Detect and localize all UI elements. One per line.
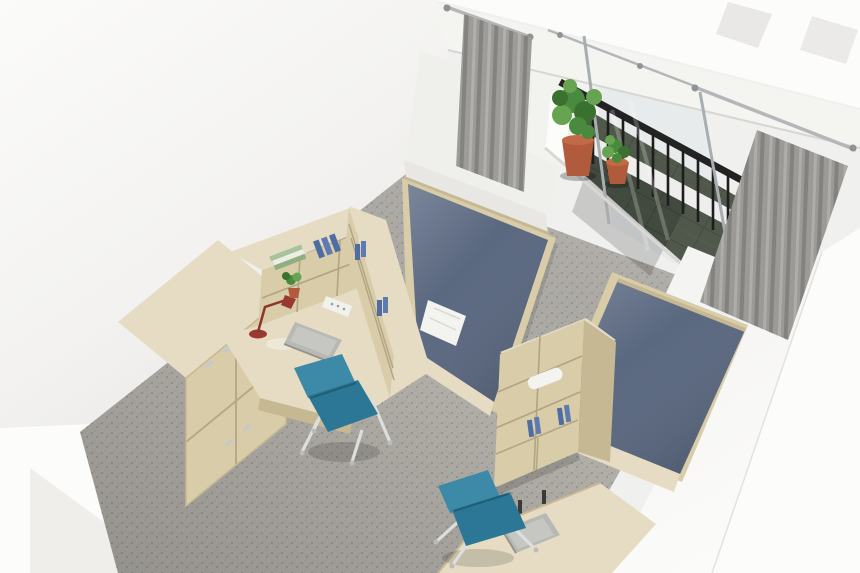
plant-pot <box>562 140 594 176</box>
door-roller-2 <box>637 63 643 69</box>
curtain-rod-right-cap2 <box>850 145 857 152</box>
curtain-rod-left-cap1 <box>444 5 451 12</box>
shelf-plant-pot <box>288 288 300 298</box>
curtain-left-shade <box>456 14 532 192</box>
dorm-room-render <box>0 0 860 573</box>
room-scene <box>0 0 860 573</box>
shelf-right-side <box>578 320 616 462</box>
chair-left-shadow <box>308 442 380 462</box>
curtain-rod-right-cap1 <box>692 85 699 92</box>
door-roller-1 <box>557 32 563 38</box>
